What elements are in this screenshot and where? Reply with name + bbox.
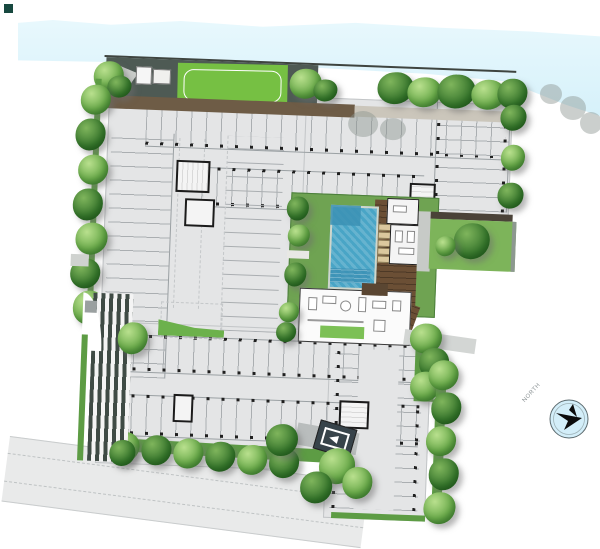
tree (423, 492, 456, 525)
tree (500, 104, 527, 131)
furniture-mark (392, 300, 401, 311)
clubhouse-room (386, 198, 419, 225)
furniture-mark (308, 297, 317, 310)
parking-row-west-inner (220, 136, 284, 333)
side-path-stub (70, 254, 88, 267)
ramp-green-edge (77, 334, 88, 460)
tree (425, 426, 456, 457)
tree (72, 188, 103, 221)
stair-core (184, 198, 215, 227)
tree (80, 84, 111, 115)
stair-core (175, 160, 210, 193)
furniture-mark (372, 300, 386, 309)
pool-steps (330, 268, 371, 284)
pavilion (153, 69, 172, 85)
stair-core (173, 394, 194, 423)
courtyard-path (287, 250, 309, 259)
tree (75, 118, 106, 151)
north-arrow-compass (548, 398, 590, 440)
tree (497, 182, 524, 209)
tree (428, 360, 459, 391)
pavilion (135, 66, 152, 85)
tree (428, 458, 459, 491)
offsite-tree-shadow (540, 84, 562, 104)
furniture-mark (398, 247, 414, 255)
compass-label: NORTH (522, 382, 542, 404)
ramp-curb (85, 300, 97, 312)
furniture-mark (340, 300, 351, 311)
furniture-mark (407, 231, 415, 243)
furniture-mark (322, 296, 336, 305)
pool-deep-zone (330, 205, 361, 226)
tree (500, 144, 525, 171)
furniture-mark (358, 297, 367, 312)
site-plan-canvas: NORTH (0, 0, 600, 549)
lobby-canopy (362, 283, 388, 296)
corner-mark (4, 4, 13, 13)
tree (431, 392, 462, 425)
counter-mark (308, 319, 364, 323)
tree (78, 154, 109, 185)
furniture-mark (393, 205, 407, 213)
furniture-mark (373, 320, 385, 332)
tree (237, 444, 268, 475)
compass-icon (548, 398, 590, 440)
furniture-mark (395, 230, 403, 242)
building-site (60, 70, 526, 549)
offsite-tree-shadow (580, 112, 600, 134)
lobby-lawn-strip (320, 325, 364, 339)
